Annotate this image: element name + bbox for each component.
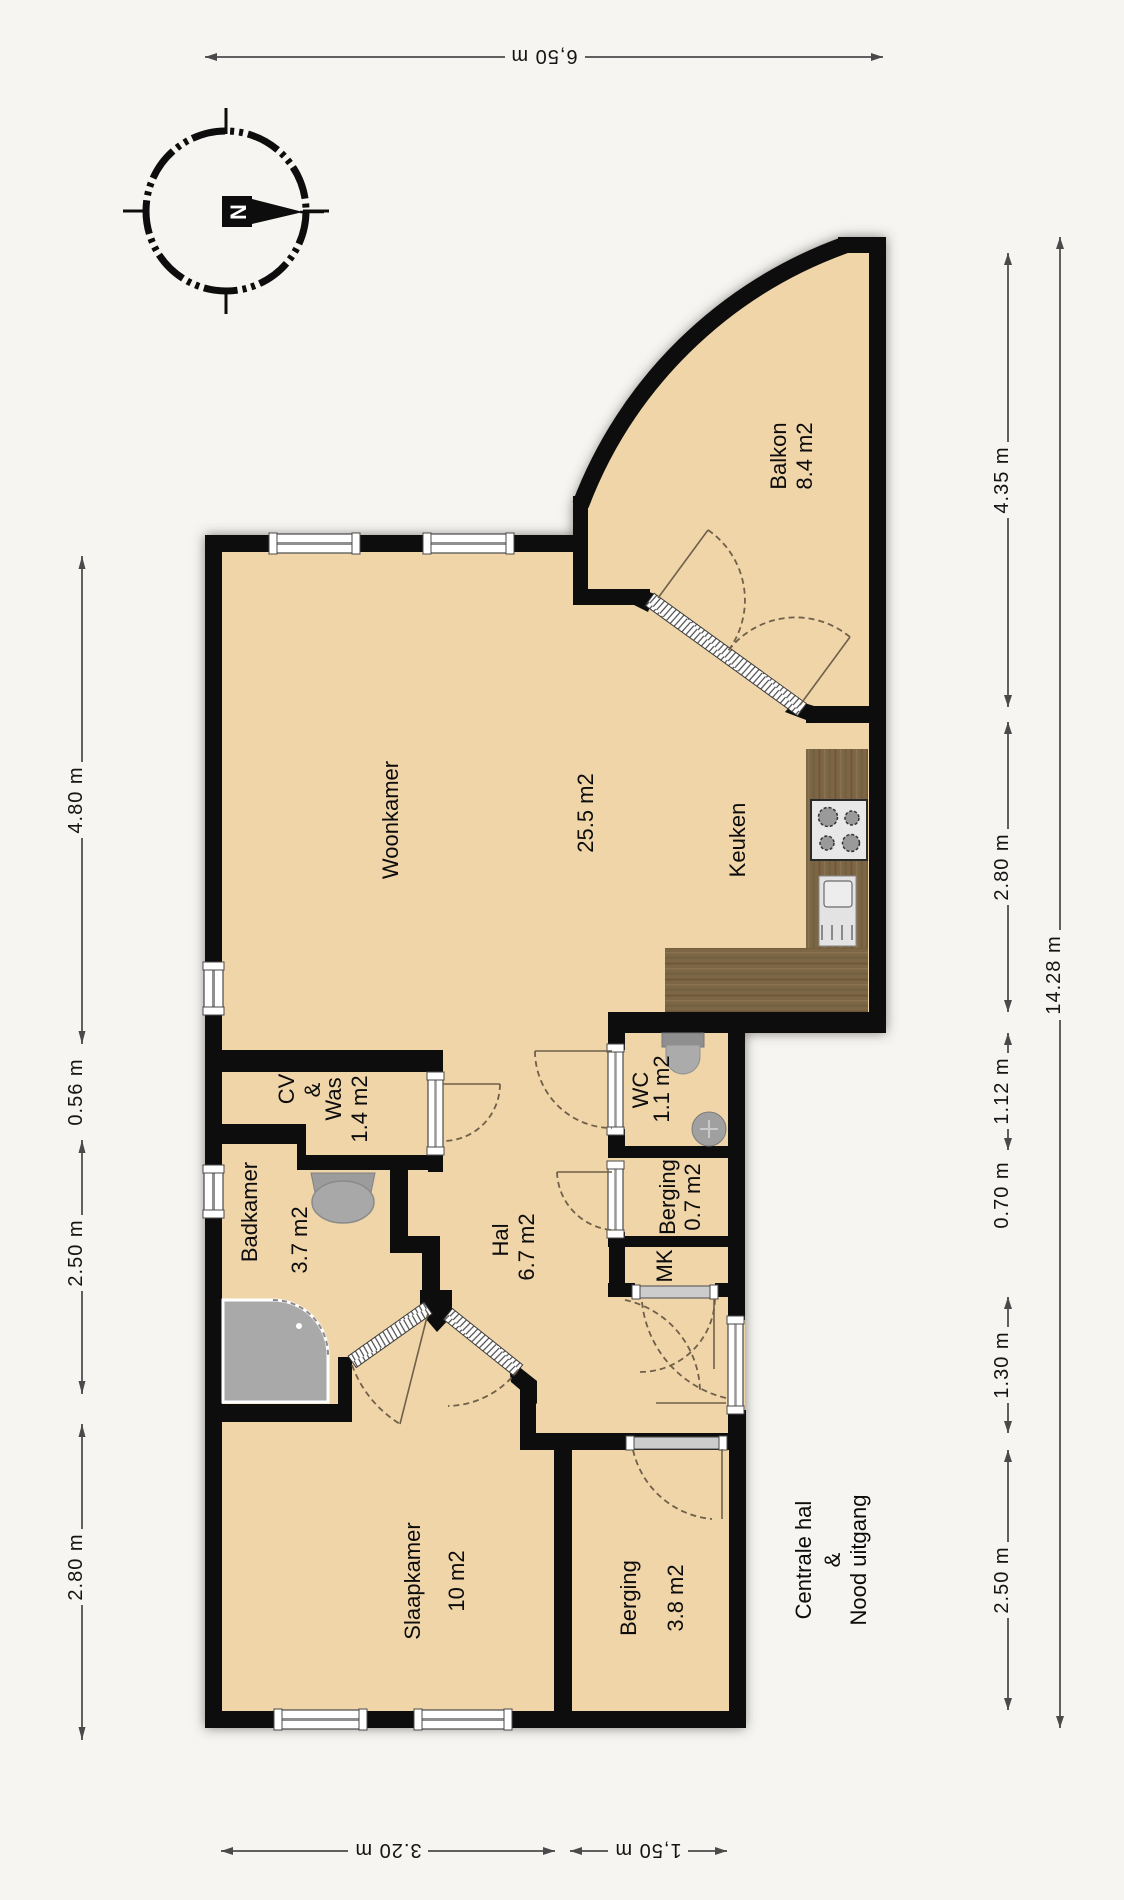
- svg-text:6,50 m: 6,50 m: [510, 45, 577, 67]
- svg-text:3.7 m2: 3.7 m2: [287, 1206, 312, 1273]
- svg-text:1.4 m2: 1.4 m2: [347, 1075, 372, 1142]
- svg-text:Badkamer: Badkamer: [237, 1162, 262, 1262]
- svg-text:2.80 m: 2.80 m: [65, 1533, 87, 1600]
- svg-text:Keuken: Keuken: [725, 803, 750, 878]
- svg-text:CV: CV: [274, 1073, 299, 1104]
- svg-text:25.5 m2: 25.5 m2: [573, 773, 598, 853]
- svg-text:8.4 m2: 8.4 m2: [792, 422, 817, 489]
- svg-text:2.80 m: 2.80 m: [991, 833, 1013, 900]
- svg-text:Berging: Berging: [655, 1159, 680, 1235]
- svg-text:1.30 m: 1.30 m: [991, 1331, 1013, 1398]
- svg-text:0.56 m: 0.56 m: [65, 1058, 87, 1125]
- svg-text:1,50 m: 1,50 m: [614, 1839, 681, 1861]
- svg-text:Slaapkamer: Slaapkamer: [400, 1522, 425, 1639]
- svg-text:3.8 m2: 3.8 m2: [663, 1564, 688, 1631]
- svg-text:Nood uitgang: Nood uitgang: [846, 1495, 871, 1626]
- svg-text:Was: Was: [321, 1077, 346, 1120]
- svg-text:1.1 m2: 1.1 m2: [649, 1055, 674, 1122]
- svg-text:2.50 m: 2.50 m: [65, 1219, 87, 1286]
- svg-text:4.35 m: 4.35 m: [991, 446, 1013, 513]
- svg-text:0.70 m: 0.70 m: [991, 1161, 1013, 1228]
- svg-text:Hal: Hal: [488, 1223, 513, 1256]
- svg-text:Berging: Berging: [616, 1560, 641, 1636]
- svg-text:&: &: [820, 1552, 845, 1567]
- svg-text:Balkon: Balkon: [766, 422, 791, 489]
- svg-text:2.50 m: 2.50 m: [991, 1546, 1013, 1613]
- svg-text:0.7 m2: 0.7 m2: [680, 1163, 705, 1230]
- svg-text:4.80 m: 4.80 m: [65, 766, 87, 833]
- svg-text:MK: MK: [652, 1249, 677, 1282]
- svg-text:14.28 m: 14.28 m: [1043, 935, 1065, 1014]
- svg-text:3.20 m: 3.20 m: [354, 1839, 421, 1861]
- svg-text:Woonkamer: Woonkamer: [378, 761, 403, 879]
- svg-text:6.7 m2: 6.7 m2: [514, 1213, 539, 1280]
- svg-text:N: N: [226, 204, 251, 220]
- svg-text:10 m2: 10 m2: [444, 1550, 469, 1611]
- svg-text:Centrale hal: Centrale hal: [791, 1501, 816, 1620]
- svg-text:1.12 m: 1.12 m: [991, 1057, 1013, 1124]
